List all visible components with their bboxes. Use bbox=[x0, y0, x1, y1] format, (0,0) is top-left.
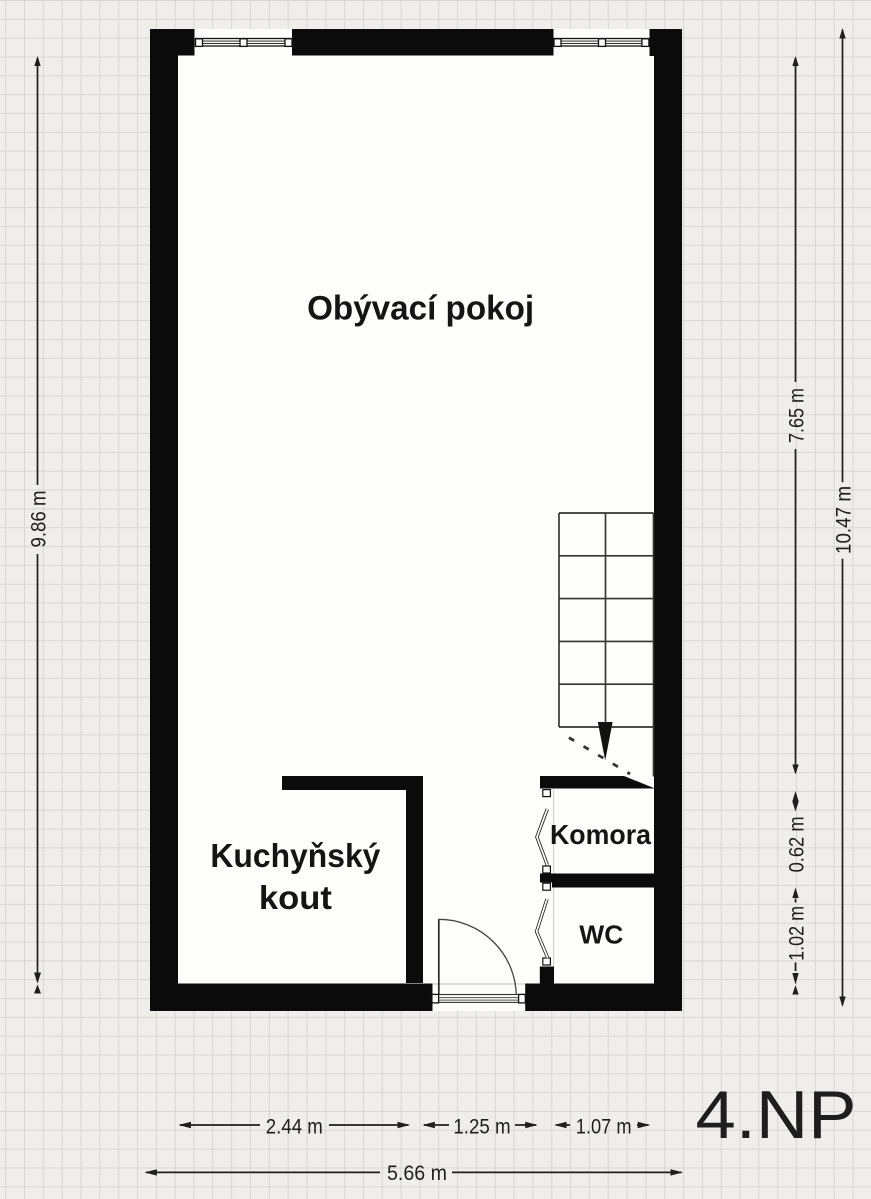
svg-text:2.44 m: 2.44 m bbox=[266, 1115, 323, 1139]
svg-text:10.47 m: 10.47 m bbox=[832, 486, 856, 554]
svg-text:4.NP: 4.NP bbox=[696, 1077, 857, 1153]
svg-text:0.62 m: 0.62 m bbox=[785, 816, 809, 872]
svg-text:1.25 m: 1.25 m bbox=[453, 1115, 510, 1139]
svg-text:9.86 m: 9.86 m bbox=[27, 491, 51, 548]
svg-text:1.02 m: 1.02 m bbox=[785, 906, 809, 961]
svg-text:Kuchyňský: Kuchyňský bbox=[210, 837, 381, 874]
svg-text:kout: kout bbox=[259, 879, 332, 916]
svg-text:Komora: Komora bbox=[550, 819, 651, 850]
svg-text:Obývací pokoj: Obývací pokoj bbox=[307, 290, 534, 328]
svg-text:7.65 m: 7.65 m bbox=[785, 388, 809, 443]
svg-text:WC: WC bbox=[579, 922, 623, 950]
svg-text:1.07 m: 1.07 m bbox=[576, 1115, 632, 1139]
svg-text:5.66 m: 5.66 m bbox=[387, 1161, 447, 1185]
